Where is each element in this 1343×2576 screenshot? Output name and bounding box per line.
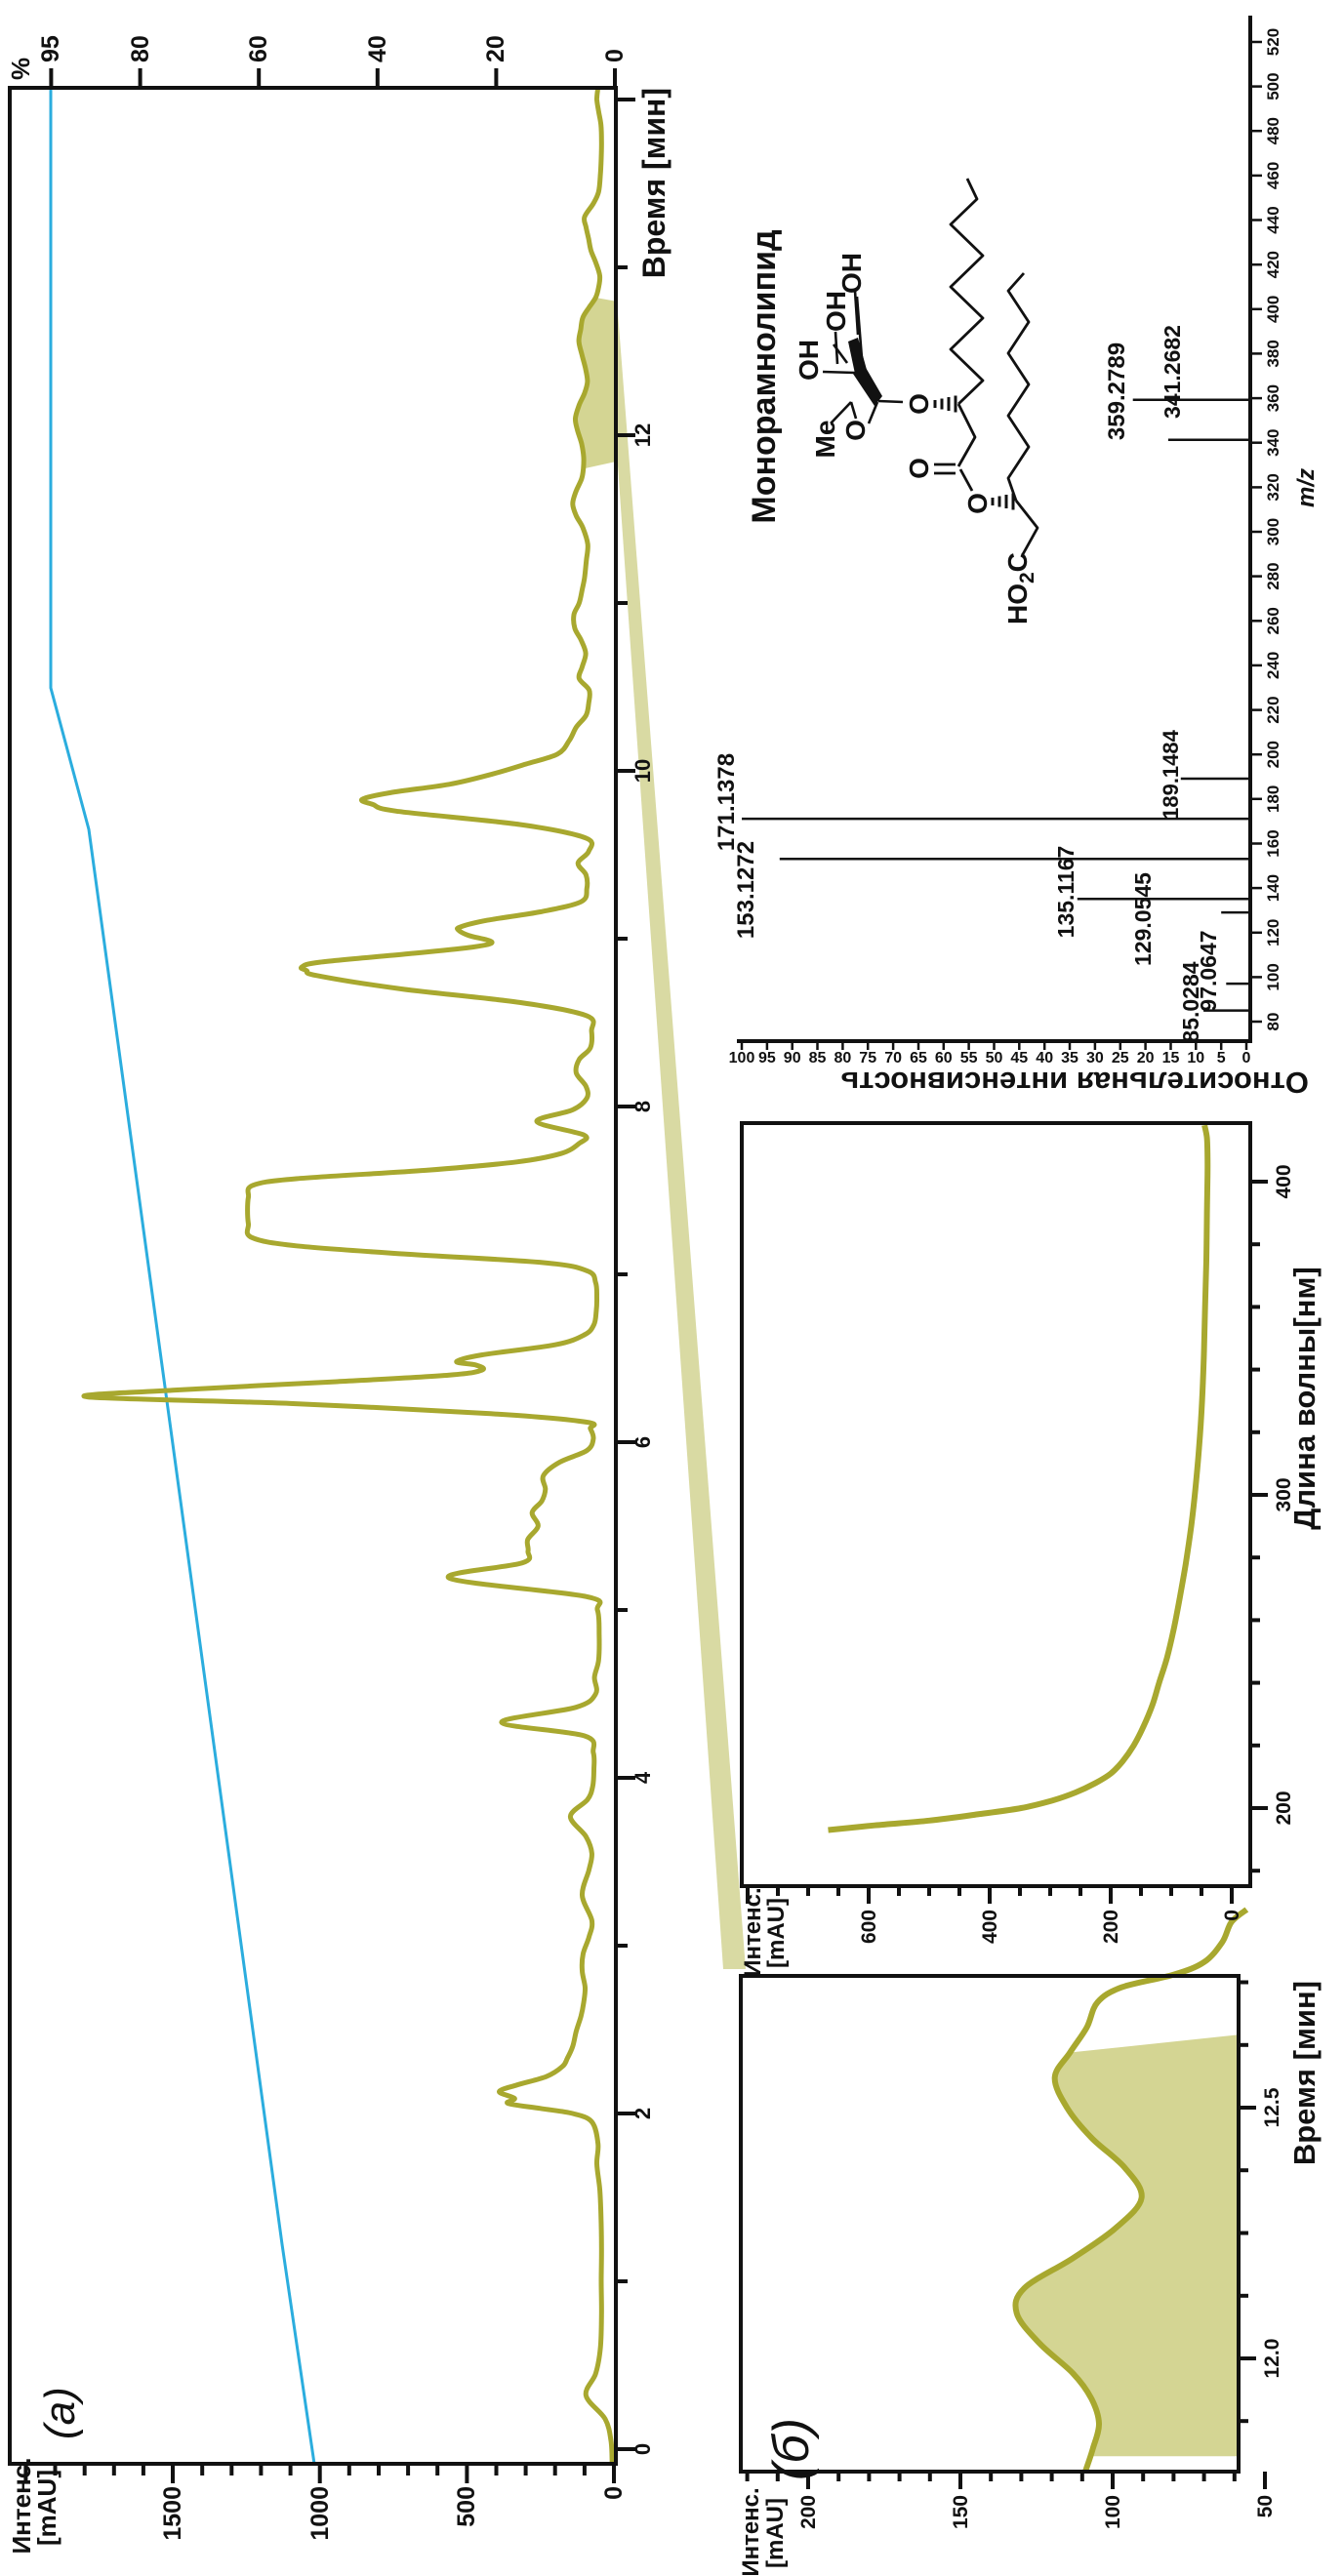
- svg-text:OH: OH: [821, 291, 851, 332]
- svg-text:80: 80: [1264, 1013, 1282, 1031]
- svg-text:5: 5: [1217, 1050, 1226, 1067]
- svg-text:40: 40: [1036, 1050, 1053, 1067]
- svg-text:400: 400: [1264, 296, 1282, 323]
- svg-text:35: 35: [1061, 1050, 1078, 1067]
- svg-text:0: 0: [631, 2443, 655, 2455]
- svg-text:300: 300: [1264, 518, 1282, 545]
- svg-text:380: 380: [1264, 340, 1282, 367]
- svg-text:Монорамнолипид: Монорамнолипид: [746, 229, 783, 523]
- svg-text:65: 65: [910, 1050, 927, 1067]
- svg-text:Длина волны[нм]: Длина волны[нм]: [1287, 1267, 1322, 1529]
- svg-text:O: O: [840, 420, 871, 441]
- svg-text:480: 480: [1264, 117, 1282, 144]
- svg-text:%: %: [6, 58, 35, 80]
- svg-text:129.0545: 129.0545: [1130, 872, 1156, 966]
- svg-text:420: 420: [1264, 251, 1282, 278]
- svg-text:280: 280: [1264, 562, 1282, 589]
- svg-text:60: 60: [245, 35, 272, 62]
- svg-text:Интенс.: Интенс.: [740, 1887, 766, 1976]
- svg-text:171.1378: 171.1378: [713, 753, 740, 851]
- svg-text:320: 320: [1264, 473, 1282, 501]
- svg-text:600: 600: [858, 1910, 880, 1944]
- svg-text:30: 30: [1086, 1050, 1104, 1067]
- svg-text:[mAU]: [mAU]: [762, 2498, 789, 2568]
- svg-text:153.1272: 153.1272: [733, 841, 759, 939]
- svg-text:440: 440: [1264, 206, 1282, 233]
- svg-text:200: 200: [797, 2495, 820, 2529]
- svg-text:OH: OH: [794, 340, 824, 381]
- svg-text:80: 80: [834, 1050, 852, 1067]
- svg-text:15: 15: [1162, 1050, 1180, 1067]
- svg-text:240: 240: [1264, 652, 1282, 679]
- svg-text:95: 95: [758, 1050, 776, 1067]
- svg-text:0: 0: [1242, 1050, 1251, 1067]
- svg-text:Время [мин]: Время [мин]: [636, 88, 671, 278]
- svg-text:140: 140: [1264, 874, 1282, 902]
- svg-text:m/z: m/z: [1293, 468, 1320, 507]
- svg-text:Me: Me: [810, 421, 840, 459]
- svg-text:120: 120: [1264, 919, 1282, 946]
- svg-text:200: 200: [1273, 1791, 1295, 1825]
- svg-text:12.5: 12.5: [1261, 2087, 1283, 2127]
- svg-text:[mAU]: [mAU]: [32, 2470, 61, 2546]
- svg-text:341.2682: 341.2682: [1160, 325, 1185, 419]
- svg-text:50: 50: [986, 1050, 1003, 1067]
- svg-text:4: 4: [631, 1771, 655, 1784]
- svg-text:85: 85: [809, 1050, 827, 1067]
- svg-text:400: 400: [1273, 1164, 1295, 1198]
- svg-text:180: 180: [1264, 785, 1282, 813]
- svg-text:12.0: 12.0: [1261, 2339, 1283, 2379]
- svg-text:(а): (а): [36, 2387, 84, 2439]
- svg-text:0: 0: [1221, 1910, 1243, 1921]
- svg-text:460: 460: [1264, 162, 1282, 189]
- svg-text:2: 2: [631, 2108, 655, 2119]
- svg-text:Время [мин]: Время [мин]: [1287, 1981, 1322, 2165]
- svg-text:8: 8: [631, 1101, 655, 1112]
- svg-text:160: 160: [1264, 829, 1282, 857]
- svg-text:520: 520: [1264, 28, 1282, 56]
- svg-text:O: O: [904, 458, 934, 479]
- svg-text:50: 50: [1254, 2495, 1277, 2517]
- svg-text:10: 10: [631, 759, 655, 783]
- svg-text:20: 20: [482, 35, 509, 62]
- svg-text:189.1484: 189.1484: [1159, 729, 1183, 820]
- svg-text:40: 40: [364, 35, 391, 62]
- svg-text:500: 500: [1264, 72, 1282, 100]
- svg-text:90: 90: [784, 1050, 801, 1067]
- svg-text:95: 95: [37, 35, 64, 62]
- svg-text:500: 500: [453, 2486, 480, 2527]
- svg-text:80: 80: [127, 35, 154, 62]
- svg-text:(б): (б): [763, 2418, 820, 2480]
- svg-text:100: 100: [1102, 2495, 1124, 2529]
- svg-text:200: 200: [1264, 741, 1282, 768]
- svg-text:340: 340: [1264, 429, 1282, 457]
- svg-text:O: O: [962, 493, 993, 514]
- svg-text:6: 6: [631, 1436, 655, 1448]
- svg-text:25: 25: [1112, 1050, 1129, 1067]
- svg-text:0: 0: [601, 49, 629, 62]
- svg-text:Интенс.: Интенс.: [738, 2487, 764, 2576]
- svg-text:100: 100: [729, 1050, 755, 1067]
- svg-text:100: 100: [1264, 963, 1282, 990]
- svg-text:220: 220: [1264, 696, 1282, 723]
- svg-text:10: 10: [1187, 1050, 1204, 1067]
- svg-text:360: 360: [1264, 384, 1282, 412]
- svg-text:60: 60: [935, 1050, 953, 1067]
- svg-text:20: 20: [1137, 1050, 1155, 1067]
- svg-text:[mAU]: [mAU]: [763, 1898, 790, 1968]
- svg-text:260: 260: [1264, 607, 1282, 634]
- svg-text:135.1167: 135.1167: [1053, 846, 1078, 939]
- svg-text:1500: 1500: [159, 2486, 186, 2541]
- svg-text:55: 55: [960, 1050, 978, 1067]
- svg-text:OH: OH: [836, 253, 867, 294]
- svg-text:1000: 1000: [306, 2486, 334, 2541]
- svg-text:12: 12: [631, 423, 655, 447]
- svg-text:45: 45: [1010, 1050, 1028, 1067]
- svg-text:150: 150: [950, 2495, 972, 2529]
- svg-text:Относительная интенсивность: Относительная интенсивность: [840, 1066, 1309, 1100]
- svg-text:0: 0: [600, 2486, 628, 2500]
- svg-text:200: 200: [1100, 1910, 1122, 1944]
- svg-text:400: 400: [979, 1910, 1001, 1944]
- svg-text:O: O: [904, 393, 934, 415]
- svg-text:HO2C: HO2C: [1002, 552, 1038, 624]
- svg-text:75: 75: [859, 1050, 876, 1067]
- svg-text:97.0647: 97.0647: [1196, 930, 1221, 1011]
- svg-text:359.2789: 359.2789: [1104, 342, 1130, 440]
- svg-text:70: 70: [884, 1050, 902, 1067]
